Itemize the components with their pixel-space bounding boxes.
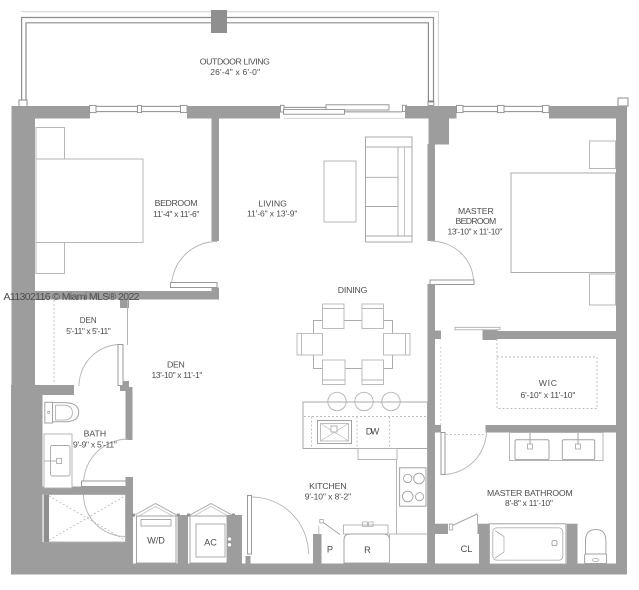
svg-text:DEN: DEN xyxy=(80,316,97,325)
svg-text:5'-11" x 5'-11": 5'-11" x 5'-11" xyxy=(66,326,111,336)
svg-text:WIC: WIC xyxy=(539,378,558,388)
svg-text:9'-10" x 8'-2": 9'-10" x 8'-2" xyxy=(305,492,352,502)
svg-text:BEDROOM: BEDROOM xyxy=(456,216,497,226)
svg-text:OUTDOOR LIVING: OUTDOOR LIVING xyxy=(200,56,270,66)
svg-text:MASTER BATHROOM: MASTER BATHROOM xyxy=(487,488,573,498)
svg-text:26'-4" x 6'-0": 26'-4" x 6'-0" xyxy=(210,67,260,77)
svg-text:11'-4" x 11'-6": 11'-4" x 11'-6" xyxy=(153,209,199,219)
svg-text:DW: DW xyxy=(366,427,380,437)
svg-text:6'-10" x 11'-10": 6'-10" x 11'-10" xyxy=(521,390,576,400)
svg-text:LIVING: LIVING xyxy=(258,198,287,208)
svg-text:DINING: DINING xyxy=(338,285,368,295)
svg-text:CL: CL xyxy=(461,544,473,554)
svg-text:BEDROOM: BEDROOM xyxy=(155,198,198,208)
svg-text:P: P xyxy=(327,545,333,555)
svg-text:KITCHEN: KITCHEN xyxy=(309,481,347,491)
svg-text:9'-9" x 5'-11": 9'-9" x 5'-11" xyxy=(73,440,117,450)
svg-text:13'-10" x 11'-10": 13'-10" x 11'-10" xyxy=(448,227,503,237)
svg-text:MASTER: MASTER xyxy=(458,206,494,216)
svg-text:11'-6" x 13'-9": 11'-6" x 13'-9" xyxy=(247,208,298,218)
svg-text:A11302116 © Miami MLS® 2022: A11302116 © Miami MLS® 2022 xyxy=(4,291,140,303)
svg-text:AC: AC xyxy=(204,538,217,548)
svg-text:8'-8" x 11'-10": 8'-8" x 11'-10" xyxy=(505,498,553,508)
svg-text:DEN: DEN xyxy=(167,360,185,370)
svg-text:13'-10" x 11'-1": 13'-10" x 11'-1" xyxy=(152,370,203,380)
svg-text:R: R xyxy=(364,545,371,555)
svg-text:BATH: BATH xyxy=(84,429,107,439)
svg-text:W/D: W/D xyxy=(147,536,165,546)
